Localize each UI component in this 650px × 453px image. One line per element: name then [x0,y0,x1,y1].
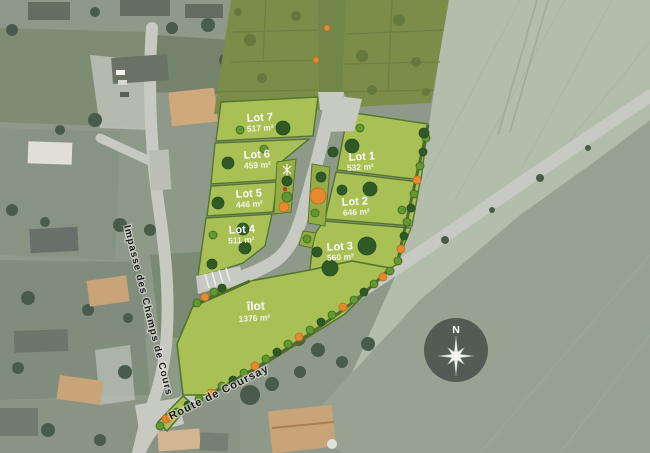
compass-north-label: N [452,324,460,336]
ilot-area: 1376 m² [238,312,270,324]
aerial-subdivision-map: Lot 7 517 m² Lot 6 459 m² Lot 5 446 m² L… [0,0,650,453]
ilot-label: îlot [245,299,265,314]
lot-4-area: 511 m² [228,234,255,245]
lot-7-area: 517 m² [247,122,275,133]
map-canvas: Lot 7 517 m² Lot 6 459 m² Lot 5 446 m² L… [0,0,650,453]
compass-rose: N [424,318,488,382]
lot-5-area: 446 m² [236,198,264,209]
lot-2-area: 646 m² [343,206,371,217]
lot-6-area: 459 m² [244,159,272,170]
lot-1-area: 532 m² [347,161,375,172]
lot-3-area: 560 m² [327,251,355,262]
